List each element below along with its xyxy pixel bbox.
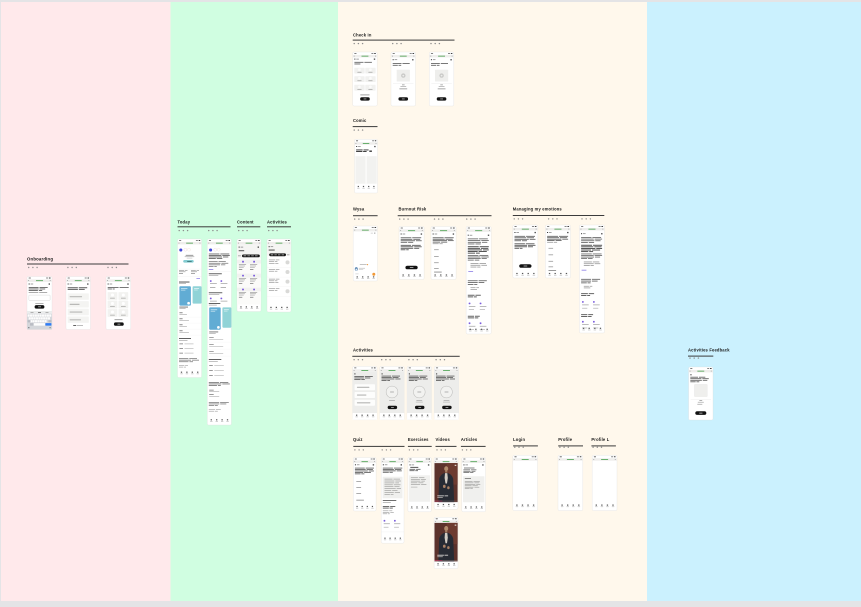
svg-text:Profile L: Profile L	[591, 437, 609, 442]
svg-text:Profile: Profile	[558, 437, 573, 442]
svg-text:Today: Today	[178, 219, 191, 224]
svg-text:Videos: Videos	[436, 437, 451, 442]
svg-text:Articles: Articles	[461, 437, 478, 442]
svg-text:Comic: Comic	[353, 118, 367, 123]
svg-text:Exercises: Exercises	[408, 437, 429, 442]
svg-text:Burnout Risk: Burnout Risk	[399, 207, 427, 212]
svg-text:Quiz: Quiz	[353, 437, 363, 442]
svg-text:Activities Feedback: Activities Feedback	[688, 347, 730, 352]
svg-text:Wysa: Wysa	[353, 207, 365, 212]
svg-text:Onboarding: Onboarding	[27, 257, 53, 262]
svg-text:Activities: Activities	[267, 219, 288, 224]
svg-text:Check in: Check in	[353, 33, 372, 38]
svg-text:Managing my emotions: Managing my emotions	[513, 207, 563, 212]
svg-text:Login: Login	[513, 437, 525, 442]
svg-text:Activities: Activities	[353, 347, 374, 352]
svg-text:Content: Content	[237, 219, 254, 224]
